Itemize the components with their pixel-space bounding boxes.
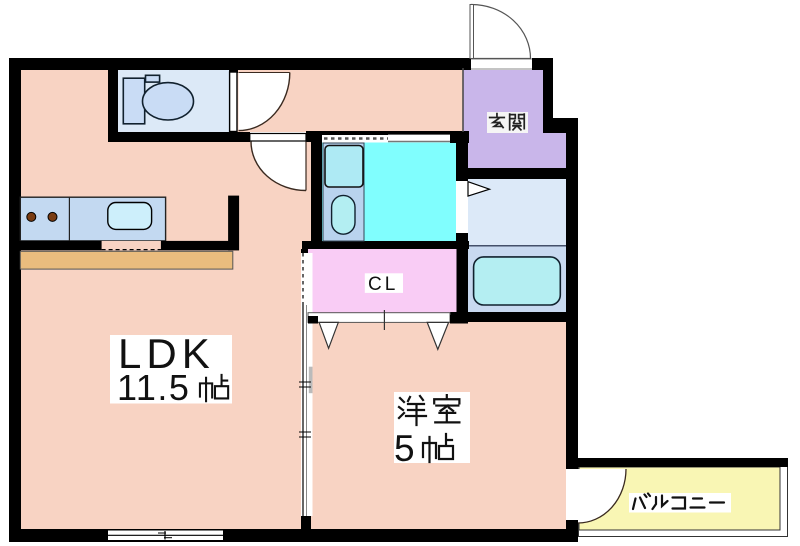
svg-text:CL: CL [368, 274, 398, 295]
svg-text:5: 5 [394, 428, 415, 469]
svg-text:11.5: 11.5 [117, 367, 190, 408]
